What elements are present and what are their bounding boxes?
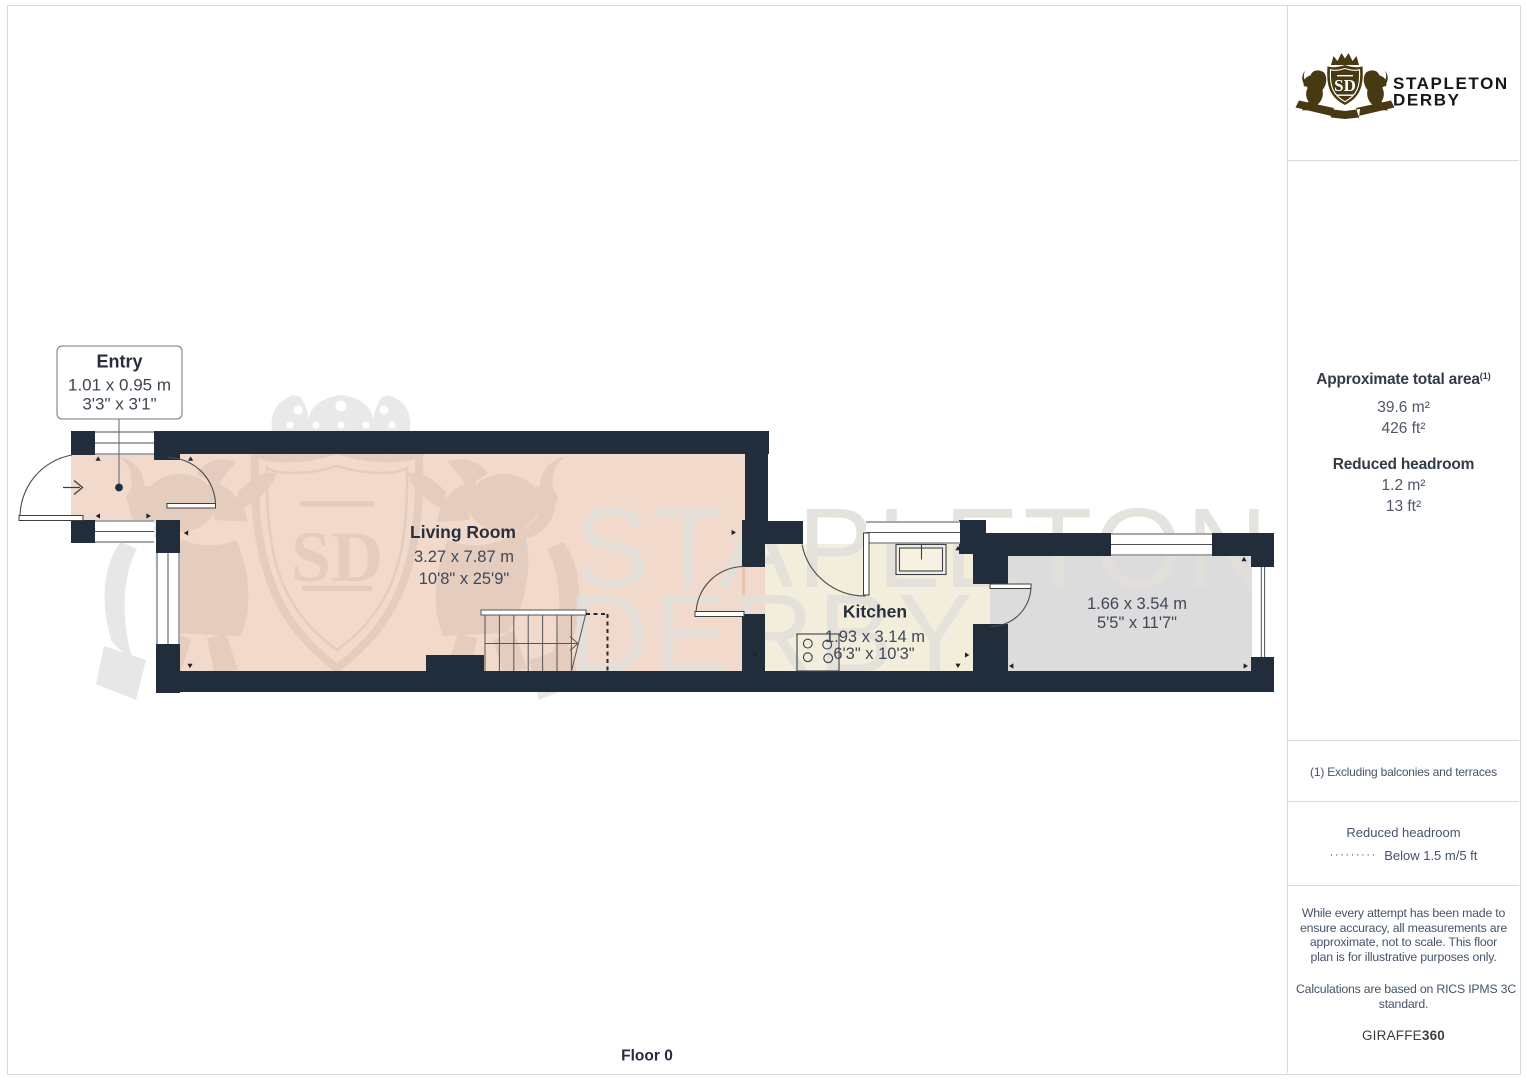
svg-text:10'8" x 25'9": 10'8" x 25'9" — [419, 570, 510, 588]
svg-text:1.01 x 0.95 m: 1.01 x 0.95 m — [68, 376, 171, 395]
svg-text:SD: SD — [1334, 76, 1356, 95]
svg-text:3.27 x 7.87 m: 3.27 x 7.87 m — [414, 548, 514, 566]
svg-text:Kitchen: Kitchen — [843, 602, 907, 622]
svg-text:Floor 0: Floor 0 — [621, 1048, 673, 1065]
svg-text:6'3" x 10'3": 6'3" x 10'3" — [833, 645, 914, 663]
svg-text:Living Room: Living Room — [410, 522, 516, 542]
svg-text:Entry: Entry — [96, 352, 142, 372]
svg-text:5'5" x 11'7": 5'5" x 11'7" — [1097, 614, 1177, 632]
svg-text:3'3" x 3'1": 3'3" x 3'1" — [82, 395, 156, 414]
svg-text:DERBY: DERBY — [1393, 91, 1461, 110]
svg-text:1.93 x 3.14 m: 1.93 x 3.14 m — [825, 628, 925, 646]
svg-text:1.66 x 3.54 m: 1.66 x 3.54 m — [1087, 595, 1187, 613]
